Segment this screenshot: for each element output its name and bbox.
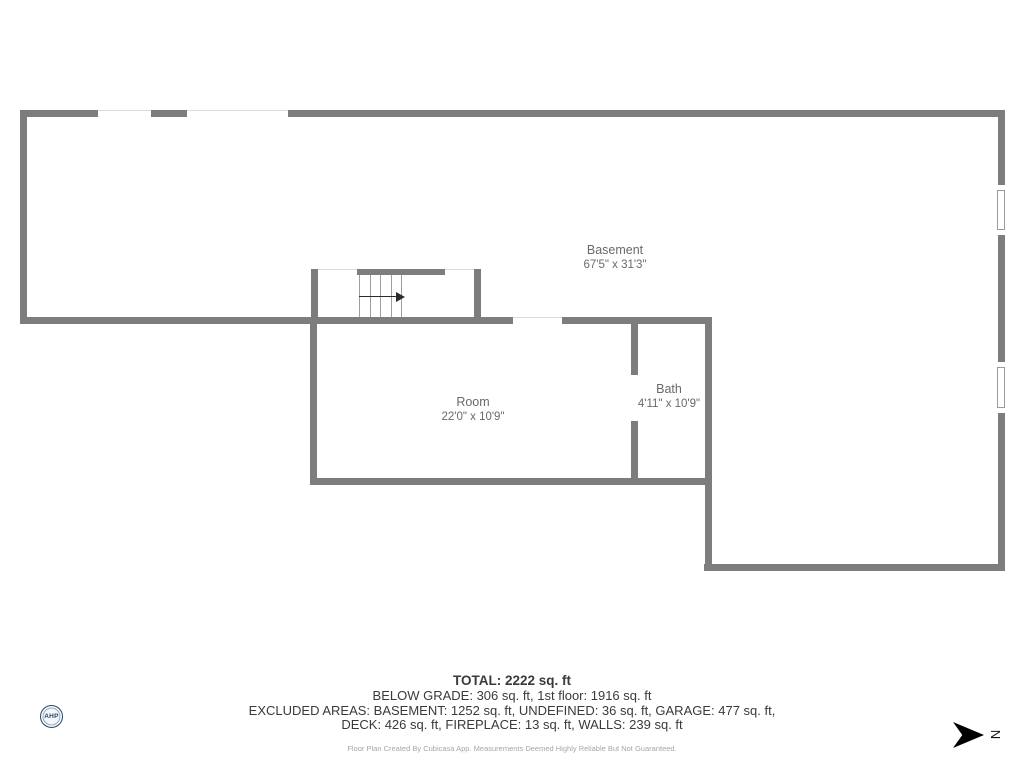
floor-plan-page: Basement 67'5" x 31'3" Room 22'0" x 10'9… [0, 0, 1024, 768]
room-dimensions: 4'11" x 10'9" [638, 397, 700, 412]
disclaimer-text: Floor Plan Created By Cubicasa App. Meas… [0, 744, 1024, 753]
wall-room-left [310, 324, 317, 485]
room-name: Room [441, 395, 504, 410]
ahp-logo: AHP [40, 705, 63, 728]
room-label-basement: Basement 67'5" x 31'3" [583, 243, 646, 273]
north-compass: N [953, 722, 1005, 748]
wall-mid-segment [562, 317, 712, 324]
wall-room-bath-divider [631, 421, 638, 478]
room-label-bath: Bath 4'11" x 10'9" [638, 382, 700, 412]
wall-top-segment [151, 110, 187, 117]
summary-below-grade: BELOW GRADE: 306 sq. ft, 1st floor: 1916… [0, 689, 1024, 704]
stairwell-opening-line [445, 269, 474, 270]
room-dimensions: 67'5" x 31'3" [583, 258, 646, 273]
stair-direction-arrow [359, 296, 397, 297]
wall-bottom-right [704, 564, 1005, 571]
wall-opening-line [98, 110, 151, 111]
wall-room-bath-divider [631, 324, 638, 375]
summary-excluded-areas: EXCLUDED AREAS: BASEMENT: 1252 sq. ft, U… [0, 704, 1024, 719]
north-arrow-icon [953, 722, 984, 748]
wall-right-segment [998, 110, 1005, 185]
room-name: Bath [638, 382, 700, 397]
room-label-room: Room 22'0" x 10'9" [441, 395, 504, 425]
wall-opening-line [187, 110, 288, 111]
stairwell-opening-line [318, 269, 357, 270]
wall-right-segment [998, 413, 1005, 564]
ahp-logo-text: AHP [44, 713, 59, 720]
summary-total: TOTAL: 2222 sq. ft [0, 674, 1024, 689]
wall-room-bottom [310, 478, 712, 485]
room-dimensions: 22'0" x 10'9" [441, 410, 504, 425]
stair-direction-arrow-head [396, 292, 405, 302]
wall-top-segment [288, 110, 1005, 117]
window-icon [997, 190, 1005, 230]
wall-left [20, 110, 27, 324]
area-summary: TOTAL: 2222 sq. ft BELOW GRADE: 306 sq. … [0, 674, 1024, 753]
wall-right-segment [998, 235, 1005, 362]
door-opening-line [513, 317, 562, 318]
stairwell-left-stub [311, 269, 318, 317]
summary-excluded-areas-2: DECK: 426 sq. ft, FIREPLACE: 13 sq. ft, … [0, 718, 1024, 733]
north-label: N [989, 730, 1002, 739]
wall-mid-segment [20, 317, 513, 324]
stairwell-right-stub [474, 269, 481, 317]
room-name: Basement [583, 243, 646, 258]
wall-bath-right [705, 324, 712, 571]
wall-top-segment [20, 110, 98, 117]
window-icon [997, 367, 1005, 408]
